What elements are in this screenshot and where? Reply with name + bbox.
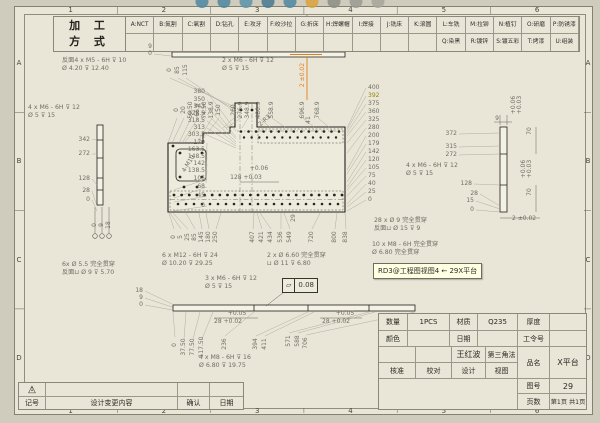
callout-line: 28 x Ø 9 完全贯穿 [374,217,427,225]
dimension-label[interactable]: 588 [295,335,301,346]
process-cell: J:铣床 [381,17,409,34]
view-label: 视图 [485,362,517,378]
dimension-label[interactable]: 360 [368,109,379,115]
dimension-label[interactable]: 434 [268,231,274,242]
zone-column-label: 5 [442,6,446,14]
process-cell: E:攻牙 [239,17,267,34]
zone-row-label: D [16,354,21,362]
dimension-label[interactable]: 421 [259,231,265,242]
callout-line: 4 x M6 - 6H ⊽ 12 [406,162,458,170]
process-cell: C:氧割 [183,17,211,34]
dimension-label[interactable]: 15 [466,198,474,204]
dimension-label[interactable]: 400 [368,85,379,91]
pages-value: 第1页 共1页 [549,393,586,409]
process-cell [353,34,381,51]
qty-label: 数量 [379,314,407,330]
hole-callout[interactable]: 4 x M6 - 6H ⊽ 12Ø 5 ⊽ 15 [406,162,458,178]
hole-callout[interactable]: 28 x Ø 9 完全贯穿反面⊔ Ø 15 ⊽ 9 [374,217,427,233]
process-cell [296,34,324,51]
callout-line: Ø 4.20 ⊽ 12.40 [62,65,126,73]
dimension-label[interactable]: 571 [286,335,292,346]
dimension-label[interactable]: 768.9 [315,101,321,118]
hole-callout[interactable]: 4 x M6 - 6H ⊽ 12Ø 5 ⊽ 15 [28,104,80,120]
process-cell [268,34,296,51]
process-cell: F:绞沙拉 [268,17,296,34]
zone-column-label: 3 [255,407,259,415]
callout-line: Ø 6.80 ⊽ 19.75 [199,362,251,370]
color-label: 颜色 [379,330,407,346]
callout-line: 2 x M6 - 6H ⊽ 12 [222,57,274,65]
process-cell [183,34,211,51]
process-cell: N:植钉 [494,17,522,34]
title-block: 数量 1PCS 材质 Q235 厚度 颜色 日期 工令号 王红波 第三角法 核准… [378,313,587,410]
process-cell: S:镀五彩锌 [494,34,522,51]
process-cell: O:研磨 [522,17,550,34]
dimension-label[interactable]: 372 [446,131,457,137]
dimension-label[interactable]: +0.05 [228,311,246,317]
dimension-label[interactable]: +0.05 [336,311,354,317]
process-cell [211,34,239,51]
dimension-label[interactable]: 272 [446,152,457,158]
dimension-label[interactable]: 236 [222,338,228,349]
hole-callout[interactable]: 6 x M12 - 6H ⊽ 24Ø 10.20 ⊽ 29.25 [162,252,218,268]
dimension-label[interactable]: 138.5 [188,168,205,174]
zone-row-label: A [17,59,22,67]
design-label: 设计 [451,362,485,378]
callout-line: ⊔ Ø 11 ⊽ 6.80 [267,260,326,268]
dimension-label[interactable]: 549 [287,231,293,242]
process-cell: H:焊螺帽 [324,17,352,34]
dimension-label[interactable]: 9 [495,116,499,122]
callout-line: 3 x M6 - 6H ⊽ 12 [205,275,257,283]
dimension-label[interactable]: 375 [368,101,379,107]
callout-line: 10 x M8 - 6H 完全贯穿 [372,241,438,249]
dimension-label[interactable]: 392 [368,93,379,99]
zone-column-label: 2 [162,6,166,14]
callout-line: 反面4 x M5 - 6H ⊽ 10 [62,57,126,65]
dimension-label[interactable]: 838 [343,231,349,242]
material-label: 材质 [449,314,477,330]
process-cell: A:NCT [126,17,154,34]
dimension-label[interactable]: 720 [309,231,315,242]
hole-callout[interactable]: 3 x M6 - 6H ⊽ 12Ø 5 ⊽ 15 [205,275,257,291]
callout-line: Ø 10.20 ⊽ 29.25 [162,260,218,268]
dimension-label[interactable]: 128 [79,176,90,182]
designer-name: 王红波 [451,346,485,362]
dimension-label[interactable]: 303.5 [188,132,205,138]
product-label: 品名 [517,346,549,378]
dimension-label[interactable]: 0 [139,302,143,308]
process-table-title: 加 工 方 式 [54,17,126,51]
process-cell: G:折床 [296,17,324,34]
dimension-label[interactable]: 25 [368,189,376,195]
dimension-label[interactable]: 105 [194,176,205,182]
zone-column-label: 6 [535,6,539,14]
dimension-label[interactable]: 380 [194,89,205,95]
callout-line: 6 x M12 - 6H ⊽ 24 [162,252,218,260]
empty-cell [209,383,243,396]
dimension-label[interactable]: 70 [527,127,533,135]
dimension-label[interactable]: 272 [79,151,90,157]
zone-row-label: C [17,256,22,264]
flatness-frame[interactable]: ▱ 0.08 [282,278,318,293]
dimension-label[interactable]: 150 [216,104,222,115]
dimension-label[interactable]: 37.50 [181,338,187,355]
zone-column-label: 4 [348,407,352,415]
hole-callout[interactable]: 10 x M8 - 6H 完全贯穿Ø 6.80 完全贯穿 [372,241,438,257]
dimension-label[interactable]: 342 [79,137,90,143]
dimension-label[interactable]: 29 [291,214,297,222]
empty-cell [379,346,415,362]
process-cell: I:焊接 [353,17,381,34]
dimension-label[interactable]: 18 [106,221,112,229]
zone-column-label: 4 [348,6,352,14]
callout-line: 反面⊔ Ø 9 ⊽ 5.70 [62,269,115,277]
zone-column-label: 3 [255,6,259,14]
zone-row-label: B [17,157,22,165]
dimension-label[interactable]: 394 [253,338,259,349]
callout-line: Ø 6.80 完全贯穿 [372,249,438,257]
dimension-label[interactable]: 40 [368,181,376,187]
dimension-label[interactable]: 41 [306,116,312,124]
callout-line: 4 x M8 - 6H ⊽ 16 [199,354,251,362]
callout-line: Ø 5 ⊽ 15 [406,170,458,178]
process-cell: D:钻孔 [211,17,239,34]
dimension-label[interactable]: 105 [368,165,379,171]
material-value: Q235 [477,314,517,330]
empty-cell [177,383,209,396]
process-cell: K:滚圆 [409,17,437,34]
dimension-label[interactable]: 348.9 [245,101,251,118]
dimension-label[interactable]: 0 [470,207,474,213]
process-cell: T:烤漆 [522,34,550,51]
revision-triangle-1: △1 [19,383,45,396]
approve-label: 核准 [379,362,415,378]
hole-callout[interactable]: 2 x Ø 6.60 完全贯穿⊔ Ø 11 ⊽ 6.80 [267,252,326,268]
dimension-label[interactable]: 179 [368,141,379,147]
dimension-label[interactable]: 280 [368,125,379,131]
empty-cell [379,378,517,409]
dimension-label[interactable]: 407 [250,231,256,242]
confirm-label: 确认 [177,396,209,409]
product-name: X平台 [549,346,586,378]
callout-line: 2 x Ø 6.60 完全贯穿 [267,252,326,260]
dimension-label[interactable]: 120 [368,157,379,163]
dimension-label[interactable]: 2 ±0.02 [512,216,536,222]
dimension-label[interactable]: 486.9 [256,101,262,118]
drawing-no-label: 图号 [517,378,549,393]
process-cell: L:车铣 [437,17,465,34]
callout-line: 6x Ø 5.5 完全贯穿 [62,261,115,269]
dimension-label[interactable]: 0 [368,197,372,203]
zone-column-label: 1 [68,6,72,14]
work-order-label: 工令号 [517,330,549,346]
dimension-label[interactable]: 200 [368,133,379,139]
dimension-label[interactable]: 0 [148,51,152,57]
tooltip: RD3@工程图视图4 ← 29X平台 [373,263,482,279]
dimension-label[interactable]: 800 [332,231,338,242]
thickness-label: 厚度 [517,314,549,330]
process-cell [409,34,437,51]
empty-cell [415,346,451,362]
sign-label: 记号 [19,396,45,409]
callout-line: 4 x M6 - 6H ⊽ 12 [28,104,80,112]
hole-callout[interactable]: 反面4 x M5 - 6H ⊽ 10Ø 4.20 ⊽ 12.40 [62,57,126,73]
hole-callout[interactable]: 4 x M8 - 6H ⊽ 16Ø 6.80 ⊽ 19.75 [199,354,251,370]
callout-line: Ø 5 ⊽ 15 [205,283,257,291]
dimension-label[interactable]: 0 [86,197,90,203]
zone-row-label: B [586,157,591,165]
dimension-label[interactable]: 85 [175,66,181,74]
dimension-label[interactable]: 128 [461,181,472,187]
date-label: 日期 [449,330,477,346]
dimension-label[interactable]: 325 [368,117,379,123]
process-cell: R:镀锌 [466,34,494,51]
date-value [477,330,517,346]
check-label: 校对 [415,362,451,378]
dimension-label[interactable]: 45 [197,193,205,199]
dimension-label[interactable]: 128 +0.03 [230,175,262,181]
work-order-value [549,330,586,346]
drawing-window: 112233445566AABBCCDD 加 工 方 式 A:NCTB:氮割C:… [0,0,600,423]
hole-callout[interactable]: 2 x M6 - 6H ⊽ 12Ø 5 ⊽ 15 [222,57,274,73]
dimension-label[interactable]: 70 [527,188,533,196]
process-cell [324,34,352,51]
dimension-label[interactable]: +0.03 [517,96,523,114]
drawing-no-value: 29 [549,378,586,393]
dimension-label[interactable]: +0.06 [250,166,268,172]
process-cell: P:防锈漆 [551,17,579,34]
dimension-label[interactable]: 75 [368,173,376,179]
callout-line: Ø 5 ⊽ 15 [28,112,80,120]
dimension-label[interactable]: +0.03 [527,160,533,178]
callout-line: 反面⊔ Ø 15 ⊽ 9 [374,225,427,233]
qty-value: 1PCS [407,314,449,330]
process-cell [381,34,409,51]
process-table: 加 工 方 式 A:NCTB:氮割C:氧割D:钻孔E:攻牙F:绞沙拉G:折床H:… [53,16,580,52]
dimension-label[interactable]: 28 +0.02 [322,319,350,325]
dimension-label[interactable]: 28 +0.02 [214,319,242,325]
dimension-label[interactable]: 0 [167,68,173,72]
process-cell [154,34,182,51]
process-cell: Q:染黑 [437,34,465,51]
hole-callout[interactable]: 6x Ø 5.5 完全贯穿反面⊔ Ø 9 ⊽ 5.70 [62,261,115,277]
process-cell: U:组装 [551,34,579,51]
empty-cell [45,383,177,396]
dimension-label[interactable]: 315 [446,144,457,150]
dimension-label[interactable]: 536 [278,231,284,242]
dimension-label[interactable]: 77.50 [190,338,196,355]
dimension-label[interactable]: 0 [201,203,205,209]
color-value [407,330,449,346]
process-cell: B:氮割 [154,17,182,34]
callout-line: Ø 5 ⊽ 15 [222,65,274,73]
projection-method: 第三角法 [485,346,517,362]
dimension-label[interactable]: 250 [213,231,219,242]
process-cell: M:拉铆 [466,17,494,34]
zone-row-label: A [586,59,591,67]
change-label: 设计变更内容 [45,396,177,409]
pages-label: 页数 [517,393,549,409]
dimension-label[interactable]: 411 [262,338,268,349]
revision-table: △1 记号 设计变更内容 确认 日期 [18,382,244,410]
dimension-label[interactable]: 68 [197,184,205,190]
flatness-value: 0.08 [295,279,317,292]
dimension-label[interactable]: 28 [82,188,90,194]
process-cell [239,34,267,51]
zone-row-label: C [586,256,591,264]
thickness-value [549,314,586,330]
flatness-icon: ▱ [283,279,295,292]
dimension-label[interactable]: 115 [183,64,189,75]
dimension-label[interactable]: 142 [368,149,379,155]
dimension-label[interactable]: 0 [172,343,178,347]
date-label: 日期 [209,396,243,409]
dimension-label[interactable]: 706 [303,337,309,348]
dimension-label[interactable]: 2 ±0.02 [300,63,306,87]
